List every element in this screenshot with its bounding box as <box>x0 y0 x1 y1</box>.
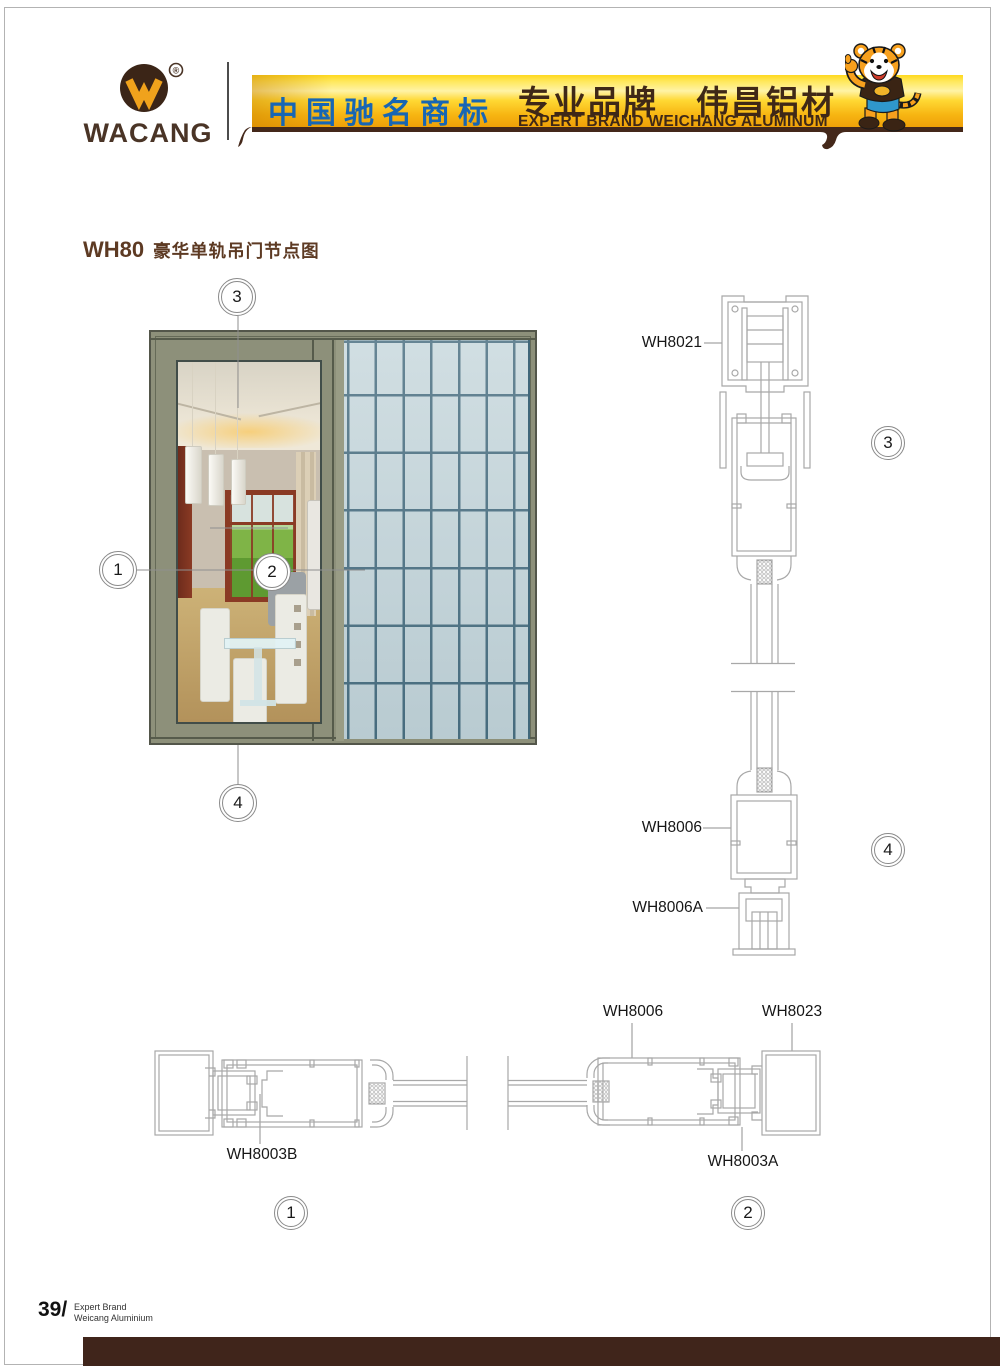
page-number: 39/ <box>38 1298 67 1322</box>
mullion-strip <box>336 340 344 741</box>
wacang-logo-icon: ® <box>112 56 192 118</box>
callout-section-3: 3 <box>871 426 905 460</box>
callout-elevation-2: 2 <box>253 553 291 591</box>
catalog-page: ® WACANG 中国驰名商标 专业品牌 伟昌铝材 EXPERT BRAND W… <box>0 0 1000 1366</box>
photo-cove-glow <box>176 412 322 448</box>
label-wh8006a: WH8006A <box>585 899 703 917</box>
label-wh8023: WH8023 <box>754 1003 830 1021</box>
callout-section-4: 4 <box>871 833 905 867</box>
footer-brand-line2: Weicang Aluminium <box>74 1313 153 1324</box>
footer-brand: Expert Brand Weicang Aluminium <box>74 1302 153 1323</box>
frosted-grid-panel <box>344 340 530 739</box>
photo-window-bar <box>227 522 297 525</box>
logo-wordmark: WACANG <box>80 118 216 149</box>
photo-lamp-cord <box>237 362 238 459</box>
callout-elevation-3: 3 <box>218 278 256 316</box>
label-wh8003b: WH8003B <box>214 1146 310 1164</box>
tiger-mascot-icon <box>845 40 925 132</box>
photo-pendant-lamp <box>231 459 246 505</box>
footer-bar <box>83 1337 1000 1366</box>
label-wh8006-stile: WH8006 <box>595 1003 671 1021</box>
photo-pendant-lamp <box>185 446 202 504</box>
photo-chair <box>200 608 230 702</box>
page-title: WH80 豪华单轨吊门节点图 <box>83 237 320 263</box>
callout-section-1: 1 <box>274 1196 308 1230</box>
photo-lamp-cord <box>215 362 216 454</box>
footer-brand-line1: Expert Brand <box>74 1302 153 1313</box>
header-divider <box>227 62 229 140</box>
banner-subline-en: EXPERT BRAND WEICHANG ALUMINUM <box>518 113 828 131</box>
photo-chair <box>275 594 307 704</box>
callout-section-2: 2 <box>731 1196 765 1230</box>
label-wh8006-rail: WH8006 <box>590 819 702 837</box>
title-series: WH80 <box>83 237 144 263</box>
door-photo-panel <box>176 360 322 724</box>
photo-table-base <box>240 700 276 706</box>
photo-table-leg <box>254 647 262 703</box>
door-elevation <box>149 330 537 745</box>
banner-headline-cn: 中国驰名商标 <box>268 88 496 132</box>
label-wh8003a: WH8003A <box>695 1153 791 1171</box>
photo-pendant-lamp <box>208 454 224 506</box>
title-name: 豪华单轨吊门节点图 <box>153 238 320 263</box>
photo-lamp-cord <box>192 362 193 446</box>
label-wh8021: WH8021 <box>590 334 702 352</box>
callout-elevation-1: 1 <box>99 551 137 589</box>
callout-elevation-4: 4 <box>219 784 257 822</box>
registered-mark: ® <box>173 66 180 76</box>
photo-cabinet <box>307 500 322 610</box>
mullion-line <box>332 338 334 741</box>
